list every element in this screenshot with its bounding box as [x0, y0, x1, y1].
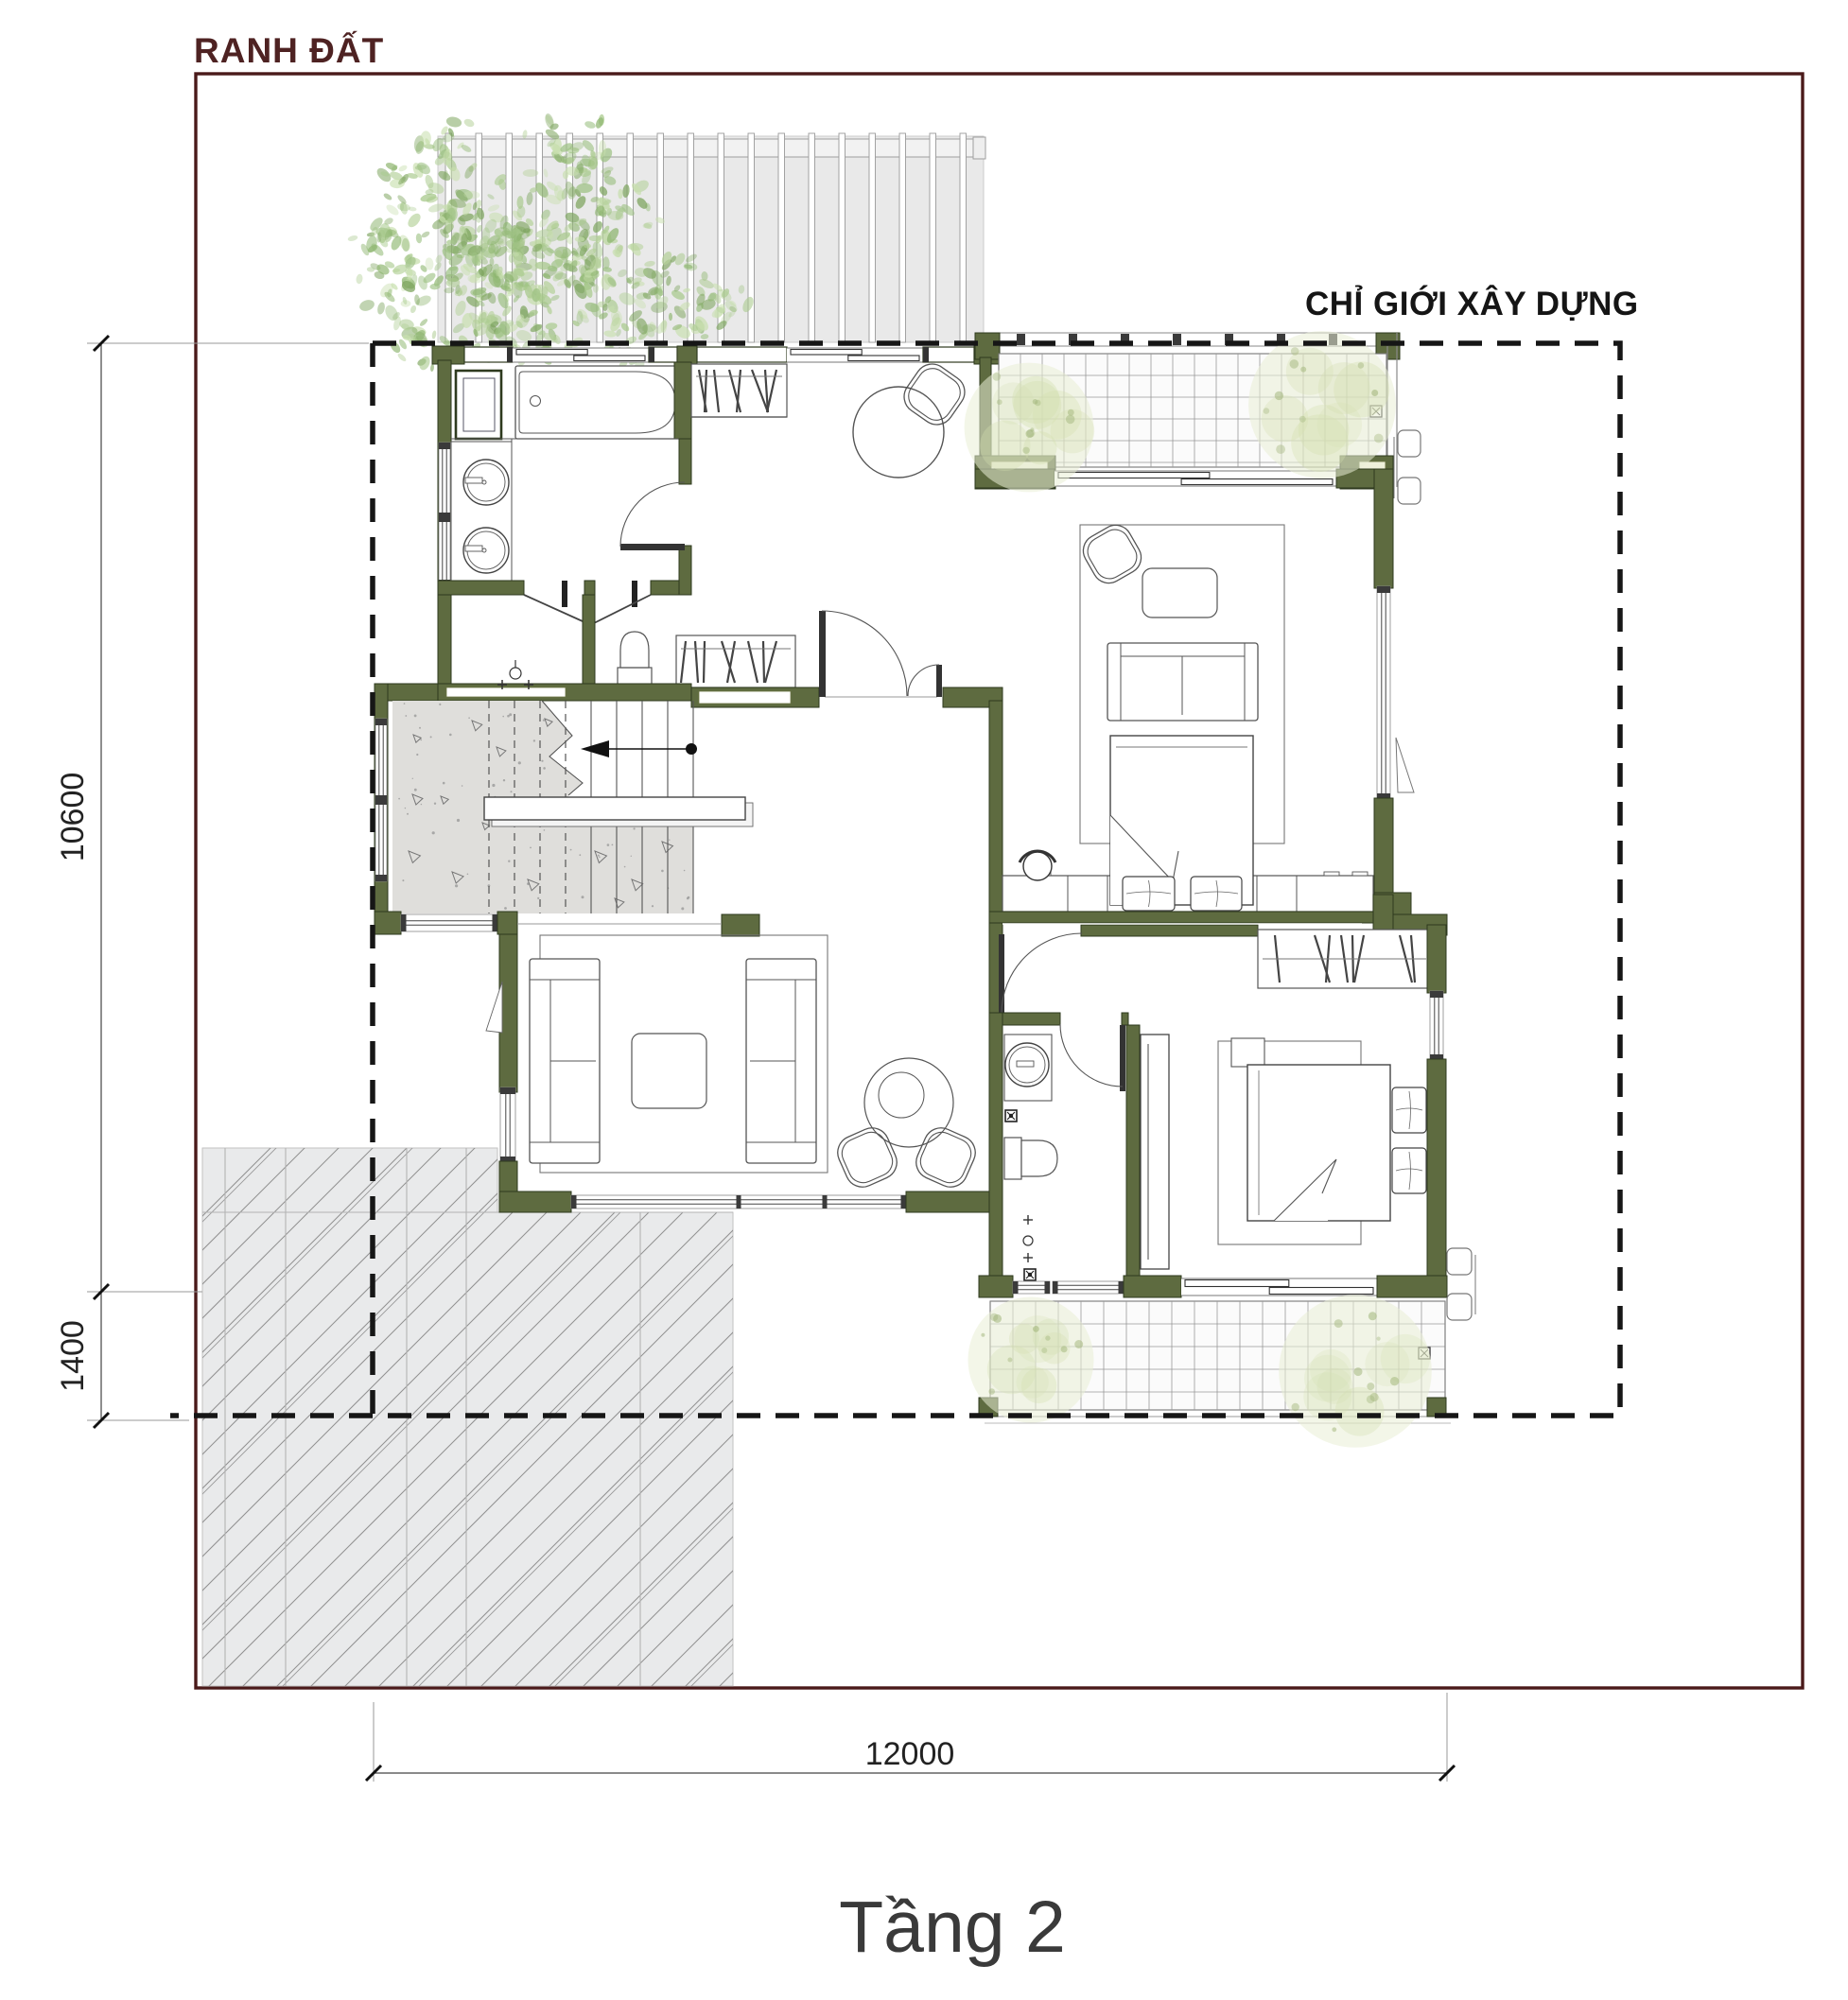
- svg-text:1400: 1400: [55, 1320, 91, 1392]
- svg-text:Tầng 2: Tầng 2: [839, 1887, 1066, 1968]
- svg-text:12000: 12000: [865, 1736, 955, 1772]
- svg-text:RANH ĐẤT: RANH ĐẤT: [194, 31, 384, 70]
- svg-text:10600: 10600: [55, 773, 91, 862]
- svg-text:CHỈ GIỚI XÂY DỰNG: CHỈ GIỚI XÂY DỰNG: [1305, 285, 1639, 322]
